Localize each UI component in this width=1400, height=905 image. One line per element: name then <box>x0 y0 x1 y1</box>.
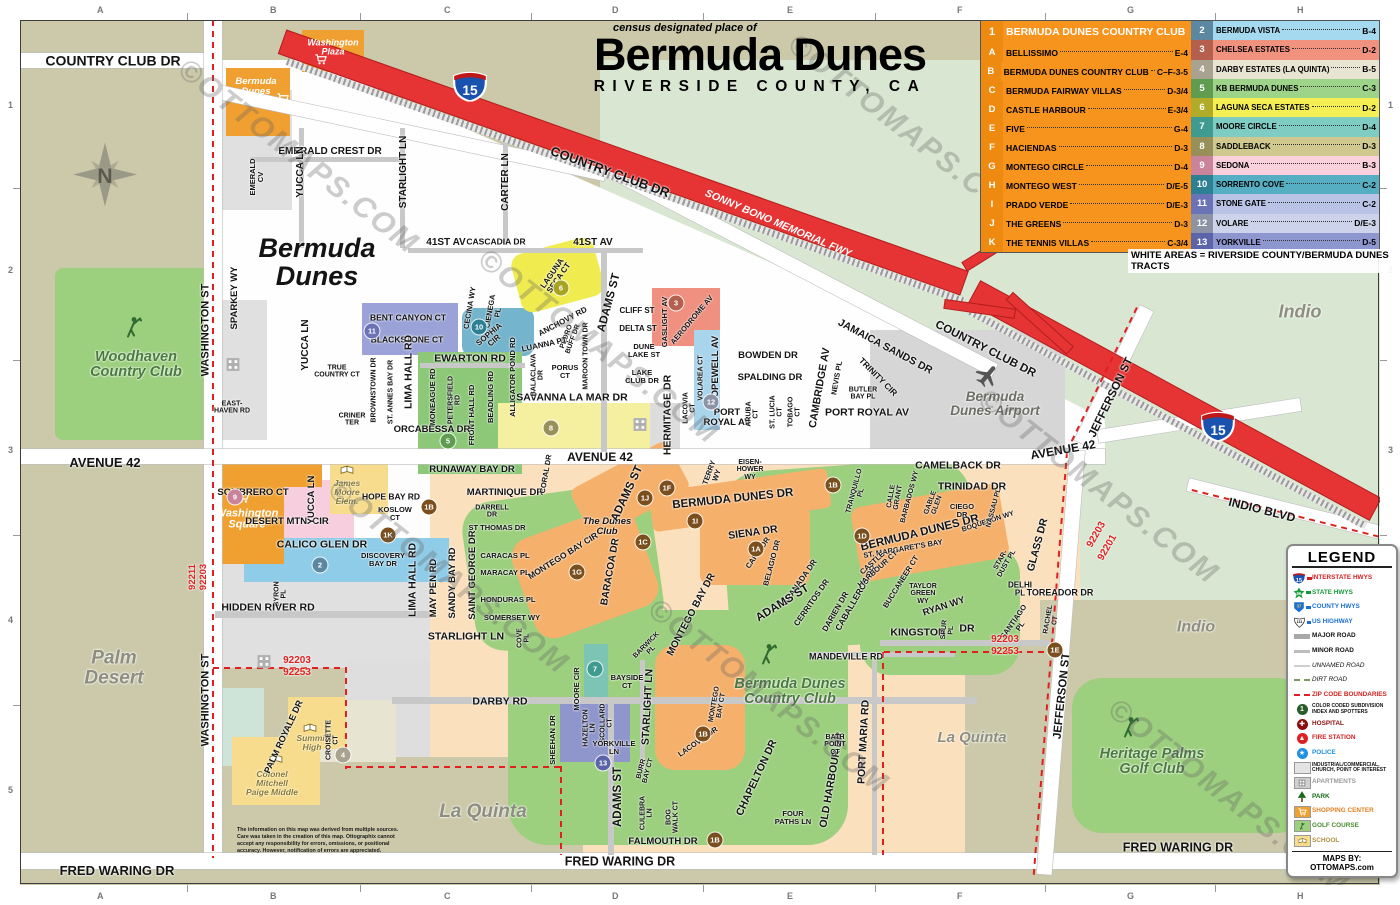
index-row-key: 5 <box>1191 79 1213 98</box>
grid-letter: C <box>444 5 451 15</box>
maps-by-credit: MAPS BY: OTTOMAPS.com <box>1292 851 1392 872</box>
street-label: COUNTRY CLUB DR <box>45 54 180 69</box>
subdivision-spotter: 2 <box>313 558 328 573</box>
grid-letter: E <box>787 891 793 901</box>
zip-dash-icon <box>1292 694 1312 696</box>
subdivision-spotter: 9 <box>228 490 243 505</box>
grid-letter: D <box>612 5 619 15</box>
index-row-leader <box>1151 70 1155 71</box>
subdivision-spotter: 11 <box>365 324 380 339</box>
index-header-number: 1 <box>981 21 1003 43</box>
street-label: 92253 <box>283 668 311 678</box>
index-row-leader <box>1286 183 1360 184</box>
street-label: FRONT HALL RD <box>468 385 476 446</box>
index-row-key: 4 <box>1191 60 1213 79</box>
street-label: Woodhaven Country Club <box>90 350 182 380</box>
grid-tick <box>187 885 188 892</box>
index-row-name: VOLARE <box>1213 219 1249 228</box>
bar-unnamed-icon <box>1292 665 1312 667</box>
index-row-name: SADDLEBACK <box>1213 142 1271 151</box>
street-label: TRUE COUNTRY CT <box>314 365 360 380</box>
street-label: YUCCA LN <box>301 319 311 370</box>
street-label: PORT ROYAL AV <box>825 408 909 419</box>
legend-item-label: PARK <box>1312 794 1330 801</box>
grid-number: 3 <box>8 445 13 455</box>
street-label: MAY PEN RD <box>429 559 439 618</box>
street-label: ST. ANNES BAY DR <box>387 360 394 424</box>
index-row-key: 3 <box>1191 40 1213 59</box>
street-label: FALMOUTH DR <box>628 837 697 847</box>
index-row: 6LAGUNA SECA ESTATESD-2 <box>1191 98 1379 117</box>
index-row-name: STONE GATE <box>1213 199 1266 208</box>
street-label: CARACAS PL <box>480 552 529 560</box>
street-label: KINGSTON <box>890 628 945 639</box>
index-row-leader <box>1070 203 1164 204</box>
index-row-name: BERMUDA FAIRWAY VILLAS <box>1003 86 1122 96</box>
street-label: PORUS CT <box>552 364 579 380</box>
page-title: Bermuda Dunes <box>545 34 975 77</box>
street-label: CALICO GLEN DR <box>277 540 367 551</box>
index-row-key: 8 <box>1191 137 1213 156</box>
grid-letter: B <box>270 891 277 901</box>
street-label: CULEBRA LN <box>640 796 655 830</box>
index-row-name: SEDONA <box>1213 161 1249 170</box>
grid-number: 1 <box>1388 100 1393 110</box>
golfer-icon <box>756 643 780 672</box>
index-row-name: HACIENDAS <box>1003 143 1057 153</box>
index-row: 4DARBY ESTATES (LA QUINTA)B-5 <box>1191 60 1379 79</box>
street-label: Indio <box>1177 620 1215 637</box>
us-shield-icon: 131 <box>1292 617 1312 628</box>
grid-letter: F <box>957 891 963 901</box>
bar-major-icon <box>1292 634 1312 639</box>
street-label: FOUR PATHS LN <box>775 810 811 826</box>
index-row-name: THE TENNIS VILLAS <box>1003 238 1089 248</box>
index-row: JTHE GREENSD-3 <box>981 214 1191 233</box>
svg-text:15: 15 <box>462 83 478 98</box>
i15-shield-icon: 15 <box>1200 410 1236 447</box>
index-row-key: C <box>981 81 1003 100</box>
disclaimer-text: The information on this map was derived … <box>237 827 411 855</box>
index-row-ref: C-3/4 <box>1167 238 1191 248</box>
index-row-name: THE GREENS <box>1003 219 1061 229</box>
index-row: 3CHELSEA ESTATESD-2 <box>1191 40 1379 59</box>
subdivision-index-left-column: 1BERMUDA DUNES COUNTRY CLUBABELLISSIMOE-… <box>981 21 1191 252</box>
street-label: Bermuda Dunes <box>258 234 375 290</box>
street-label: DUNE LAKE ST <box>628 343 660 359</box>
index-row-leader <box>1063 222 1172 223</box>
street-label: ARUBA CT <box>746 401 761 426</box>
grid-letter: H <box>1297 5 1304 15</box>
street-label: AVENUE 42 <box>69 456 140 470</box>
street-label: La Quinta <box>439 802 527 822</box>
grid-tick <box>1045 13 1046 20</box>
grid-tick <box>1380 360 1387 361</box>
index-row-key: D <box>981 100 1003 119</box>
spotter-circle-icon: 1 <box>1292 704 1312 715</box>
svg-text:15: 15 <box>1296 578 1302 584</box>
grid-letter: H <box>1297 891 1304 901</box>
index-row-leader <box>1027 127 1172 128</box>
index-row-key: H <box>981 176 1003 195</box>
legend-item-label: FIRE STATION <box>1312 735 1355 742</box>
legend-item-label: COUNTY HWYS <box>1312 604 1360 611</box>
index-row-key: 10 <box>1191 175 1213 194</box>
subdivision-spotter: 5 <box>441 434 456 449</box>
subdivision-spotter: 1A <box>749 542 764 557</box>
street-label: SANDY BAY RD <box>448 547 458 618</box>
street-label: DARRELL DR <box>475 505 508 520</box>
grid-tick <box>703 13 704 20</box>
legend-item: GOLF COURSE <box>1292 819 1392 834</box>
index-row-leader <box>1059 146 1173 147</box>
legend-item: ★POLICE <box>1292 746 1392 761</box>
index-row: HMONTEGO WESTD/E-5 <box>981 176 1191 195</box>
street-label: James Moore Elem. <box>334 479 360 505</box>
index-row: ABELLISSIMOE-4 <box>981 43 1191 62</box>
legend-title: LEGEND <box>1292 549 1392 568</box>
index-row-ref: D-3 <box>1174 143 1191 153</box>
index-row-leader <box>1331 67 1360 68</box>
index-row-key: 11 <box>1191 194 1213 213</box>
index-row-ref: C-2 <box>1362 199 1379 209</box>
street-label: YORKVILLE LN <box>593 740 636 756</box>
legend-item: SCHOOL <box>1292 834 1392 849</box>
index-row-ref: C–F-3-5 <box>1157 67 1191 77</box>
grid-letter: A <box>97 891 104 901</box>
saddleback-area <box>498 403 650 453</box>
street-label: RUNAWAY BAY DR <box>429 465 515 475</box>
street-label: BUTLER BAY PL <box>849 387 877 402</box>
police-circle-icon: ★ <box>1292 748 1312 759</box>
street-label: 92203 <box>283 656 311 666</box>
street-label: SPUR PL <box>940 620 956 641</box>
index-row-key: 9 <box>1191 156 1213 175</box>
street-label: PORT ROYAL AV <box>704 408 751 428</box>
index-row: BBERMUDA DUNES COUNTRY CLUBC–F-3-5 <box>981 62 1191 81</box>
legend-item: 15INTERSTATE HWYS <box>1292 571 1392 586</box>
index-row-key: G <box>981 157 1003 176</box>
street-label: DR <box>959 624 974 635</box>
subdivision-pocket <box>655 645 745 770</box>
park-tree-icon <box>1292 791 1312 803</box>
street-label: Bermuda Dunes Airport <box>950 390 1040 418</box>
grid-letter: G <box>1127 5 1134 15</box>
street-label: Bermuda Dunes Plaza <box>235 77 276 107</box>
subdivision-spotter: 6 <box>554 281 569 296</box>
grid-tick <box>360 885 361 892</box>
street-label: 92211 <box>188 564 198 590</box>
legend-item: 1COLOR CODED SUBDIVISION INDEX AND SPOTT… <box>1292 702 1392 717</box>
subdivision-spotter: 1B <box>708 833 723 848</box>
street-label: BOWDEN DR <box>738 351 798 361</box>
index-row-key: A <box>981 43 1003 62</box>
legend-item-label: DIRT ROAD <box>1312 677 1347 684</box>
subdivision-spotter: 10 <box>472 320 487 335</box>
minor-road <box>250 157 400 162</box>
index-row-name: DARBY ESTATES (LA QUINTA) <box>1213 65 1329 74</box>
street-label: DARBY RD <box>472 697 527 708</box>
street-label: EISEN- HOWER WY <box>737 459 764 481</box>
street-label: TOBAGO CT <box>788 397 803 428</box>
index-header-name: BERMUDA DUNES COUNTRY CLUB <box>1003 21 1191 43</box>
legend-item-label: POLICE <box>1312 750 1336 757</box>
grid-letter: E <box>787 5 793 15</box>
grid-number: 4 <box>8 615 13 625</box>
street-label: CAMELBACK DR <box>915 461 1001 472</box>
street-label: SAINT GEORGE DR <box>468 530 478 619</box>
index-row-ref: C-2 <box>1362 180 1379 190</box>
legend-item-label: UNNAMED ROAD <box>1312 663 1365 670</box>
compass-icon: N <box>73 143 137 212</box>
street-label: TOREADOR DR <box>1027 588 1094 597</box>
index-row: 2BERMUDA VISTAB-4 <box>1191 21 1379 40</box>
grid-letter: B <box>270 5 277 15</box>
index-row-name: BERMUDA VISTA <box>1213 26 1280 35</box>
grid-number: 1 <box>8 100 13 110</box>
subdivision-spotter: 1G <box>570 565 585 580</box>
legend-item-label: INDUSTRIAL/COMMERCIAL, CHURCH, POINT OF … <box>1312 763 1386 774</box>
index-row-ref: B-3 <box>1362 160 1379 170</box>
street-label: KOSLOW CT <box>378 506 412 522</box>
apartment-icon <box>257 654 272 674</box>
index-row-name: BELLISSIMO <box>1003 48 1058 58</box>
street-label: BALACLAVA DR <box>531 354 546 397</box>
legend-item-label: MINOR ROAD <box>1312 648 1354 655</box>
legend-item: ✚HOSPITAL <box>1292 717 1392 732</box>
index-row-name: PRADO VERDE <box>1003 200 1068 210</box>
street-label: LACOVIA CT <box>683 392 698 424</box>
street-label: MANDEVILLE RD <box>809 652 883 661</box>
index-row-leader <box>1088 108 1166 109</box>
title-subtitle: RIVERSIDE COUNTY, CA <box>545 78 975 96</box>
street-label: EWARTON RD <box>434 354 506 365</box>
index-row-key: E <box>981 119 1003 138</box>
street-label: ST. LUCIA CT <box>770 395 785 428</box>
grid-letter: D <box>612 891 619 901</box>
subdivision-index-right-column: 2BERMUDA VISTAB-43CHELSEA ESTATESD-24DAR… <box>1191 21 1379 252</box>
street-label: BOG WALK CT <box>666 801 681 833</box>
legend-item: ZIP CODE BOUNDARIES <box>1292 688 1392 703</box>
street-label: ADAMS ST <box>613 767 625 827</box>
apartment-icon <box>633 417 648 437</box>
index-row: 8SADDLEBACKD-3 <box>1191 137 1379 156</box>
subdivision-spotter: 1J <box>638 491 653 506</box>
street-label: LIMA HALL RD <box>404 335 415 409</box>
index-row-key: 6 <box>1191 98 1213 117</box>
grid-letter: A <box>97 5 104 15</box>
index-row-ref: E-3/4 <box>1168 105 1191 115</box>
index-row-leader <box>1312 106 1361 107</box>
legend-item-label: HOSPITAL <box>1312 721 1344 728</box>
index-row: IPRADO VERDED/E-3 <box>981 195 1191 214</box>
grid-tick <box>13 360 20 361</box>
index-row-ref: D-3 <box>1362 141 1379 151</box>
subdivision-spotter: 1D <box>855 529 870 544</box>
street-label: HONDURAS PL <box>480 596 535 604</box>
map-frame <box>0 0 1400 20</box>
street-label: 92203 <box>991 635 1019 645</box>
street-label: CLIFF ST <box>619 307 654 315</box>
street-label: BATH POINT CT <box>824 734 845 756</box>
street-label: FRED WARING DR <box>60 864 175 878</box>
index-row-ref: C-3 <box>1362 83 1379 93</box>
index-row-name: CASTLE HARBOUR <box>1003 105 1086 115</box>
legend-item: MINOR ROAD <box>1292 644 1392 659</box>
grid-tick <box>875 13 876 20</box>
grid-tick <box>875 885 876 892</box>
subdivision-spotter: 1E <box>1048 643 1063 658</box>
apartments-swatch-icon <box>1292 777 1312 789</box>
subdivision-spotter: 1F <box>660 481 675 496</box>
white-areas-footnote: WHITE AREAS = RIVERSIDE COUNTY/BERMUDA D… <box>1128 249 1400 273</box>
index-row-key: 7 <box>1191 117 1213 136</box>
index-row: 5KB BERMUDA DUNESC-3 <box>1191 79 1379 98</box>
subdivision-spotter: 1B <box>696 727 711 742</box>
index-row: 12VOLARED/E-3 <box>1191 214 1379 233</box>
state-shield-icon: 56 <box>1292 587 1312 599</box>
index-row-name: MONTEGO WEST <box>1003 181 1077 191</box>
street-label: MARACAY PL <box>480 569 529 577</box>
street-label: MOORE CIR <box>573 667 581 710</box>
bar-dirt-icon <box>1292 679 1312 681</box>
svg-text:56: 56 <box>1297 591 1302 596</box>
map-title-block: census designated place of Bermuda Dunes… <box>545 22 975 96</box>
grid-number: 3 <box>1388 445 1393 455</box>
index-row-leader <box>1060 51 1173 52</box>
legend-item: ▲FIRE STATION <box>1292 732 1392 747</box>
street-label: EAST- HAVEN RD <box>214 401 250 416</box>
street-label: Washington Plaza <box>307 39 358 58</box>
legend-item-label: COLOR CODED SUBDIVISION INDEX AND SPOTTE… <box>1312 704 1383 715</box>
street-label: CRINER TER <box>339 413 366 428</box>
fire-circle-icon: ▲ <box>1292 733 1312 744</box>
legend-item: DIRT ROAD <box>1292 673 1392 688</box>
index-row-leader <box>1086 165 1172 166</box>
bar-minor-icon <box>1292 650 1312 653</box>
street-label: ORCABESSA DR <box>394 425 471 435</box>
i15-shield-icon: 15 <box>452 70 488 107</box>
shopping-swatch-icon <box>1292 806 1312 818</box>
index-row-leader <box>1292 48 1360 49</box>
street-label: BROWNSTOWN DR <box>370 357 377 422</box>
golfer-icon <box>121 316 145 345</box>
subdivision-spotter: 4 <box>336 748 351 763</box>
grid-tick <box>1380 188 1387 189</box>
street-label: SCOLLARD CT <box>600 704 615 743</box>
index-row-name: KB BERMUDA DUNES <box>1213 84 1298 93</box>
subdivision-spotter: 12 <box>704 395 719 410</box>
street-label: 41ST AV <box>573 238 612 248</box>
street-label: ALLIGATOR POND RD <box>509 337 517 417</box>
minor-road <box>601 250 607 452</box>
index-row-name: YORKVILLE <box>1213 238 1261 247</box>
index-row-name: LAGUNA SECA ESTATES <box>1213 103 1310 112</box>
street-label: EMERALD CV <box>249 158 265 195</box>
legend-item: UNNAMED ROAD <box>1292 659 1392 674</box>
street-label: BENT CANYON CT <box>370 314 446 323</box>
index-row-ref: D/E-3 <box>1166 200 1191 210</box>
index-row: CBERMUDA FAIRWAY VILLASD-3/4 <box>981 81 1191 100</box>
svg-text:N: N <box>97 164 112 188</box>
index-row-ref: D-5 <box>1362 237 1379 247</box>
legend: LEGEND 15INTERSTATE HWYS56STATE HWYS37CO… <box>1286 544 1398 878</box>
street-label: YUCCA LN <box>296 146 306 197</box>
map-frame <box>0 885 1400 905</box>
street-label: SPARKEY WY <box>230 267 240 330</box>
street-label: 92203 <box>199 564 209 590</box>
street-label: CIEGO DR <box>950 503 974 519</box>
index-row-key: I <box>981 195 1003 214</box>
index-row-leader <box>1263 240 1361 241</box>
street-label: CASCADIA DR <box>466 238 525 247</box>
cart-icon <box>277 92 290 110</box>
index-row: GMONTEGO CIRCLED-4 <box>981 157 1191 176</box>
index-row: EFIVEG-4 <box>981 119 1191 138</box>
grid-number: 5 <box>8 785 13 795</box>
index-row-name: CHELSEA ESTATES <box>1213 45 1290 54</box>
subdivision-spotter: 1B <box>422 500 437 515</box>
legend-item-label: ZIP CODE BOUNDARIES <box>1312 692 1387 699</box>
subdivision-spotter: 1K <box>381 528 396 543</box>
legend-item: 37COUNTY HWYS <box>1292 600 1392 615</box>
legend-item: SHOPPING CENTER <box>1292 805 1392 820</box>
index-row: 10SORRENTO COVEC-2 <box>1191 175 1379 194</box>
index-row-leader <box>1251 163 1360 164</box>
zip-boundary <box>345 766 562 768</box>
index-row-ref: G-4 <box>1174 124 1191 134</box>
street-label: VOLAREA CT <box>697 355 704 400</box>
svg-text:15: 15 <box>1210 423 1226 438</box>
index-row: 11STONE GATEC-2 <box>1191 194 1379 213</box>
grid-tick <box>360 13 361 20</box>
subdivision-spotter: 1I <box>688 514 703 529</box>
street-label: PETERSFIELD RD <box>448 376 463 424</box>
legend-item: PARK <box>1292 790 1392 805</box>
index-row: DCASTLE HARBOURE-3/4 <box>981 100 1191 119</box>
legend-item-label: MAJOR ROAD <box>1312 633 1356 640</box>
index-row-key: 2 <box>1191 21 1213 40</box>
grid-tick <box>1380 535 1387 536</box>
interstate-shield-icon: 15 <box>1292 572 1312 584</box>
grid-number: 2 <box>8 265 13 275</box>
index-row-key: B <box>981 62 1001 81</box>
index-row-ref: D/E-5 <box>1166 181 1191 191</box>
street-label: 41ST AV <box>426 238 465 248</box>
minor-road <box>408 248 643 253</box>
zip-boundary <box>560 766 562 855</box>
index-row: 7MOORE CIRCLED-4 <box>1191 117 1379 136</box>
index-row-name: BERMUDA DUNES COUNTRY CLUB <box>1001 67 1149 77</box>
street-label: HOPE BAY RD <box>362 493 420 502</box>
street-label: BEADLING RD <box>487 371 495 423</box>
street-label: FRED WARING DR <box>1123 842 1233 855</box>
street-label: 92253 <box>991 647 1019 657</box>
index-row-leader <box>1079 184 1164 185</box>
zip-boundary <box>882 652 884 855</box>
index-row-name: SORRENTO COVE <box>1213 180 1284 189</box>
legend-items: 15INTERSTATE HWYS56STATE HWYS37COUNTY HW… <box>1292 571 1392 848</box>
legend-item-label: INTERSTATE HWYS <box>1312 575 1372 582</box>
legend-item-label: US HIGHWAY <box>1312 619 1353 626</box>
subdivision-spotter: 7 <box>588 662 603 677</box>
index-row-leader <box>1282 29 1360 30</box>
legend-item: 56STATE HWYS <box>1292 586 1392 601</box>
index-row: FHACIENDASD-3 <box>981 138 1191 157</box>
street-label: LIMA HALL RD <box>408 543 419 617</box>
subdivision-spotter: 3 <box>669 296 684 311</box>
street-label: Summit High <box>296 734 327 752</box>
